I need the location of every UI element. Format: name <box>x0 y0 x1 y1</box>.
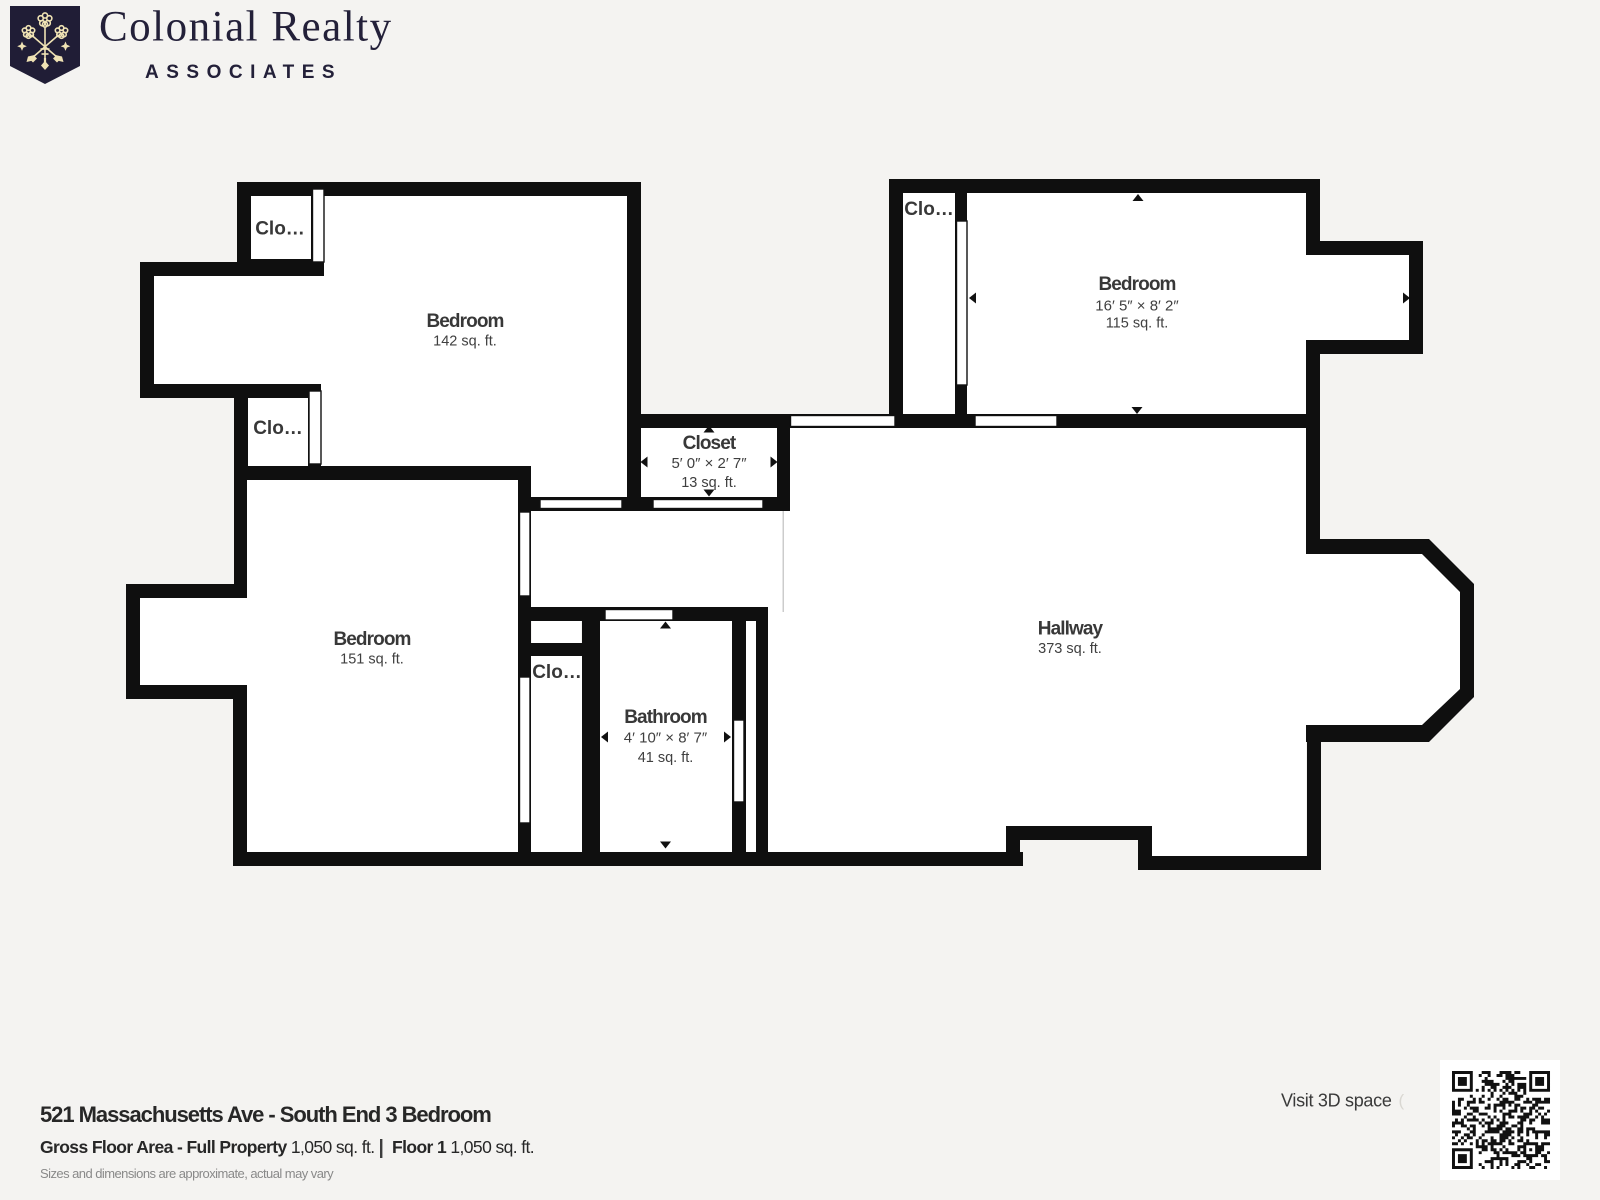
svg-text:Clo…: Clo… <box>253 418 303 439</box>
svg-text:115 sq. ft.: 115 sq. ft. <box>1106 316 1169 332</box>
svg-text:Clo…: Clo… <box>532 662 582 683</box>
svg-text:373 sq. ft.: 373 sq. ft. <box>1038 641 1102 657</box>
svg-text:Visit 3D space: Visit 3D space <box>1281 1091 1392 1111</box>
svg-text:Bedroom: Bedroom <box>333 629 410 650</box>
svg-text:Clo…: Clo… <box>255 219 305 240</box>
svg-text:(: ( <box>1399 1091 1405 1110</box>
svg-text:151 sq. ft.: 151 sq. ft. <box>340 652 404 668</box>
svg-text:41 sq. ft.: 41 sq. ft. <box>638 750 694 766</box>
svg-text:Closet: Closet <box>683 433 737 454</box>
svg-text:521 Massachusetts Ave - South: 521 Massachusetts Ave - South End 3 Bedr… <box>40 1102 491 1127</box>
svg-text:Colonial Realty: Colonial Realty <box>99 4 393 51</box>
svg-text:Floor 1 1,050 sq. ft.: Floor 1 1,050 sq. ft. <box>392 1137 534 1157</box>
svg-text:ASSOCIATES: ASSOCIATES <box>145 62 342 83</box>
svg-text:5′ 0″ × 2′ 7″: 5′ 0″ × 2′ 7″ <box>671 455 747 472</box>
svg-text:Bathroom: Bathroom <box>624 707 707 728</box>
svg-text:Clo…: Clo… <box>904 199 954 220</box>
svg-text:Bedroom: Bedroom <box>426 311 503 332</box>
svg-text:Sizes and dimensions are appro: Sizes and dimensions are approximate, ac… <box>40 1166 334 1181</box>
svg-text:4′ 10″ × 8′ 7″: 4′ 10″ × 8′ 7″ <box>624 730 708 747</box>
svg-text:Hallway: Hallway <box>1038 619 1104 640</box>
svg-text:Gross Floor Area - Full Proper: Gross Floor Area - Full Property 1,050 s… <box>40 1137 375 1157</box>
svg-text:16′ 5″ × 8′ 2″: 16′ 5″ × 8′ 2″ <box>1095 298 1179 315</box>
svg-text:142 sq. ft.: 142 sq. ft. <box>433 334 497 350</box>
svg-text:Bedroom: Bedroom <box>1098 274 1175 295</box>
svg-text:13 sq. ft.: 13 sq. ft. <box>681 475 737 491</box>
